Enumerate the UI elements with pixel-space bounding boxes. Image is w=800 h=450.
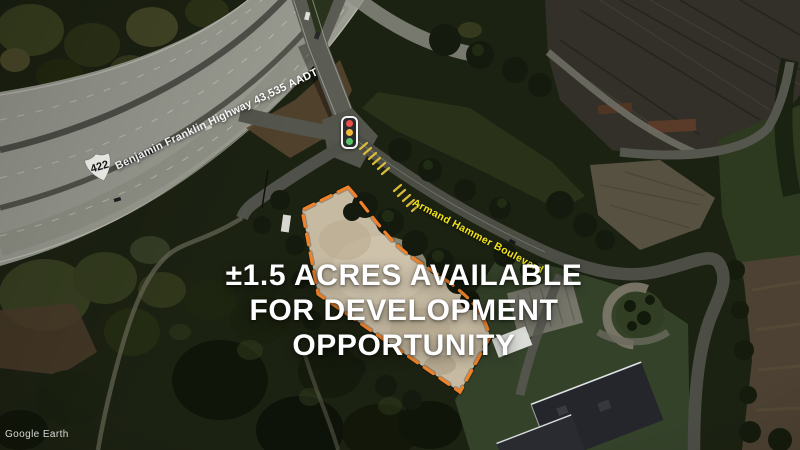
google-earth-watermark: Google Earth bbox=[5, 429, 69, 440]
traffic-light-icon bbox=[341, 116, 358, 149]
aerial-marketing-image: 422 Benjamin Franklin Highway 43,535 AAD… bbox=[0, 0, 800, 450]
traffic-light-red bbox=[346, 120, 353, 127]
headline-line-2: FOR DEVELOPMENT bbox=[226, 293, 583, 328]
headline-line-1: ±1.5 ACRES AVAILABLE bbox=[226, 258, 583, 293]
traffic-light-yellow bbox=[346, 129, 353, 136]
satellite-basemap bbox=[0, 0, 800, 450]
headline-line-3: OPPORTUNITY bbox=[226, 328, 583, 363]
headline: ±1.5 ACRES AVAILABLE FOR DEVELOPMENT OPP… bbox=[226, 258, 583, 363]
traffic-light-green bbox=[346, 138, 353, 145]
